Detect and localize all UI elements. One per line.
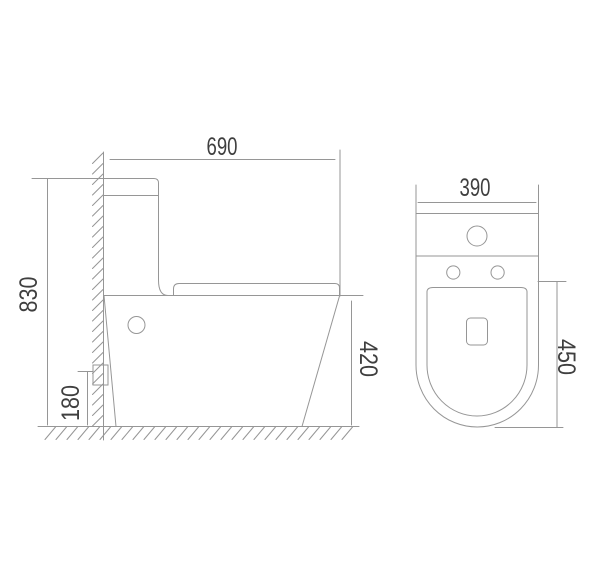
hinge-hole-left	[447, 266, 460, 279]
tank-outline-top	[416, 214, 539, 257]
tank-outline-side	[32, 179, 168, 296]
side-hole-circle	[128, 317, 145, 334]
body-outline-top	[416, 256, 539, 427]
hinge-hole-right	[491, 266, 504, 279]
top-view	[416, 185, 566, 428]
drawing-sheet: 690 830 180 420 390 450	[0, 0, 600, 579]
dim-label-height-830: 830	[15, 277, 43, 313]
technical-drawing: 690 830 180 420 390 450	[0, 0, 600, 579]
flush-outlet-hole	[467, 318, 488, 345]
dim-label-width-390: 390	[460, 174, 491, 202]
dim-label-bowl-420: 420	[354, 341, 382, 377]
dim-label-length-450: 450	[552, 339, 580, 375]
dimension-labels: 690 830 180 420 390 450	[15, 133, 580, 421]
body-front-edge	[302, 296, 340, 427]
dim-label-depth-690: 690	[207, 133, 238, 161]
water-inlet-box	[93, 365, 108, 385]
flush-button-circle	[467, 226, 487, 246]
seat-outline-top	[427, 288, 527, 417]
body-back-edge	[104, 296, 116, 427]
dim-label-inlet-180: 180	[57, 385, 85, 421]
seat-side	[174, 284, 340, 297]
floor-hatching	[45, 427, 353, 440]
